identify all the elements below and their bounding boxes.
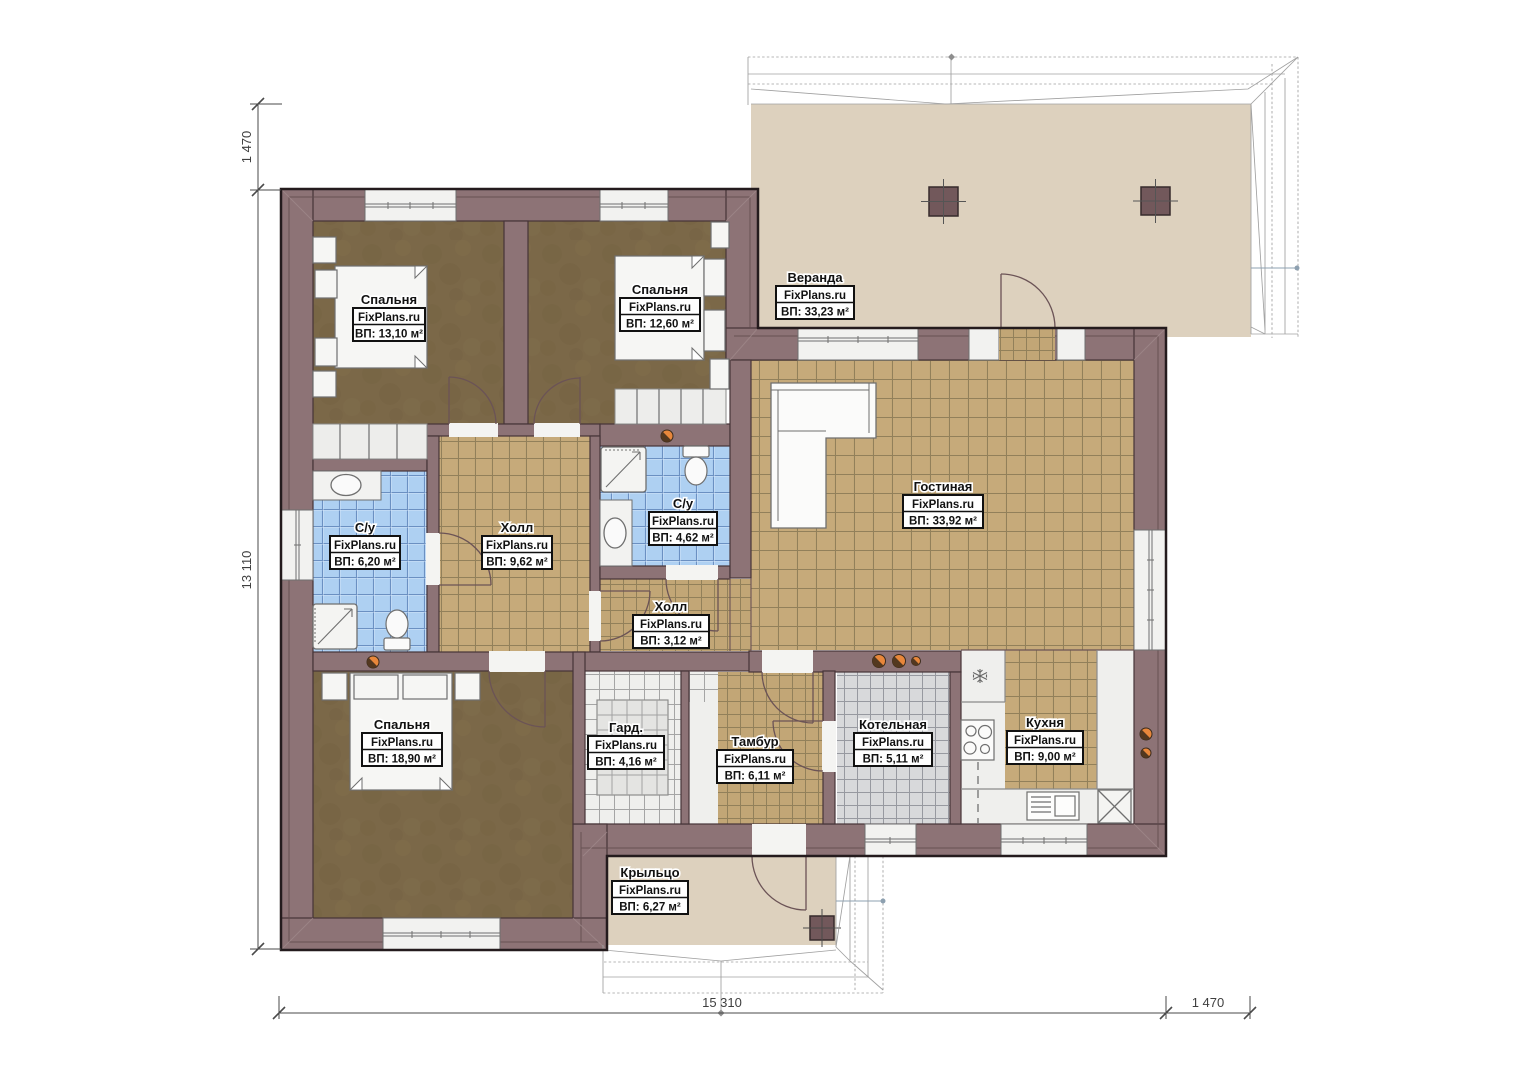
svg-text:Веранда: Веранда (787, 270, 843, 285)
svg-text:FixPlans.ru: FixPlans.ru (724, 754, 786, 766)
svg-text:Гард.: Гард. (609, 720, 643, 735)
svg-text:15 310: 15 310 (702, 995, 742, 1010)
svg-text:FixPlans.ru: FixPlans.ru (862, 737, 924, 749)
svg-text:FixPlans.ru: FixPlans.ru (595, 740, 657, 752)
svg-text:Кухня: Кухня (1026, 715, 1064, 730)
svg-text:Холл: Холл (501, 520, 534, 535)
svg-text:FixPlans.ru: FixPlans.ru (619, 885, 681, 897)
svg-text:ВП: 6,27 м²: ВП: 6,27 м² (619, 902, 681, 914)
svg-text:ВП: 4,16 м²: ВП: 4,16 м² (595, 757, 657, 769)
svg-text:Холл: Холл (655, 599, 688, 614)
svg-text:13 110: 13 110 (239, 551, 254, 590)
svg-text:ВП: 4,62 м²: ВП: 4,62 м² (652, 533, 714, 545)
svg-text:ВП: 12,60 м²: ВП: 12,60 м² (626, 319, 694, 331)
svg-text:ВП: 33,92 м²: ВП: 33,92 м² (909, 516, 977, 528)
svg-text:FixPlans.ru: FixPlans.ru (912, 499, 974, 511)
svg-text:ВП: 9,00 м²: ВП: 9,00 м² (1014, 752, 1076, 764)
svg-text:FixPlans.ru: FixPlans.ru (1014, 735, 1076, 747)
svg-text:ВП: 5,11 м²: ВП: 5,11 м² (863, 754, 924, 766)
svg-text:FixPlans.ru: FixPlans.ru (640, 619, 702, 631)
svg-text:ВП: 18,90 м²: ВП: 18,90 м² (368, 754, 436, 766)
svg-text:ВП: 13,10 м²: ВП: 13,10 м² (355, 329, 423, 341)
svg-text:Крыльцо: Крыльцо (620, 865, 679, 880)
svg-text:FixPlans.ru: FixPlans.ru (652, 516, 714, 528)
svg-text:ВП: 6,11 м²: ВП: 6,11 м² (725, 771, 786, 783)
svg-text:Спальня: Спальня (374, 717, 430, 732)
svg-text:ВП: 3,12 м²: ВП: 3,12 м² (640, 636, 702, 648)
svg-text:1 470: 1 470 (239, 131, 254, 164)
svg-text:Спальня: Спальня (632, 282, 688, 297)
svg-text:FixPlans.ru: FixPlans.ru (784, 290, 846, 302)
svg-text:FixPlans.ru: FixPlans.ru (334, 540, 396, 552)
svg-text:FixPlans.ru: FixPlans.ru (486, 540, 548, 552)
svg-text:Тамбур: Тамбур (731, 734, 778, 749)
svg-text:FixPlans.ru: FixPlans.ru (358, 312, 420, 324)
svg-text:1 470: 1 470 (1192, 995, 1225, 1010)
svg-text:ВП: 6,20 м²: ВП: 6,20 м² (334, 557, 396, 569)
svg-text:С/у: С/у (673, 496, 694, 511)
svg-text:Спальня: Спальня (361, 292, 417, 307)
svg-text:С/у: С/у (355, 520, 376, 535)
svg-text:FixPlans.ru: FixPlans.ru (371, 737, 433, 749)
svg-text:ВП: 33,23 м²: ВП: 33,23 м² (781, 307, 849, 319)
svg-text:ВП: 9,62 м²: ВП: 9,62 м² (486, 557, 548, 569)
svg-text:FixPlans.ru: FixPlans.ru (629, 302, 691, 314)
svg-text:Котельная: Котельная (859, 717, 927, 732)
svg-text:Гостиная: Гостиная (914, 479, 973, 494)
